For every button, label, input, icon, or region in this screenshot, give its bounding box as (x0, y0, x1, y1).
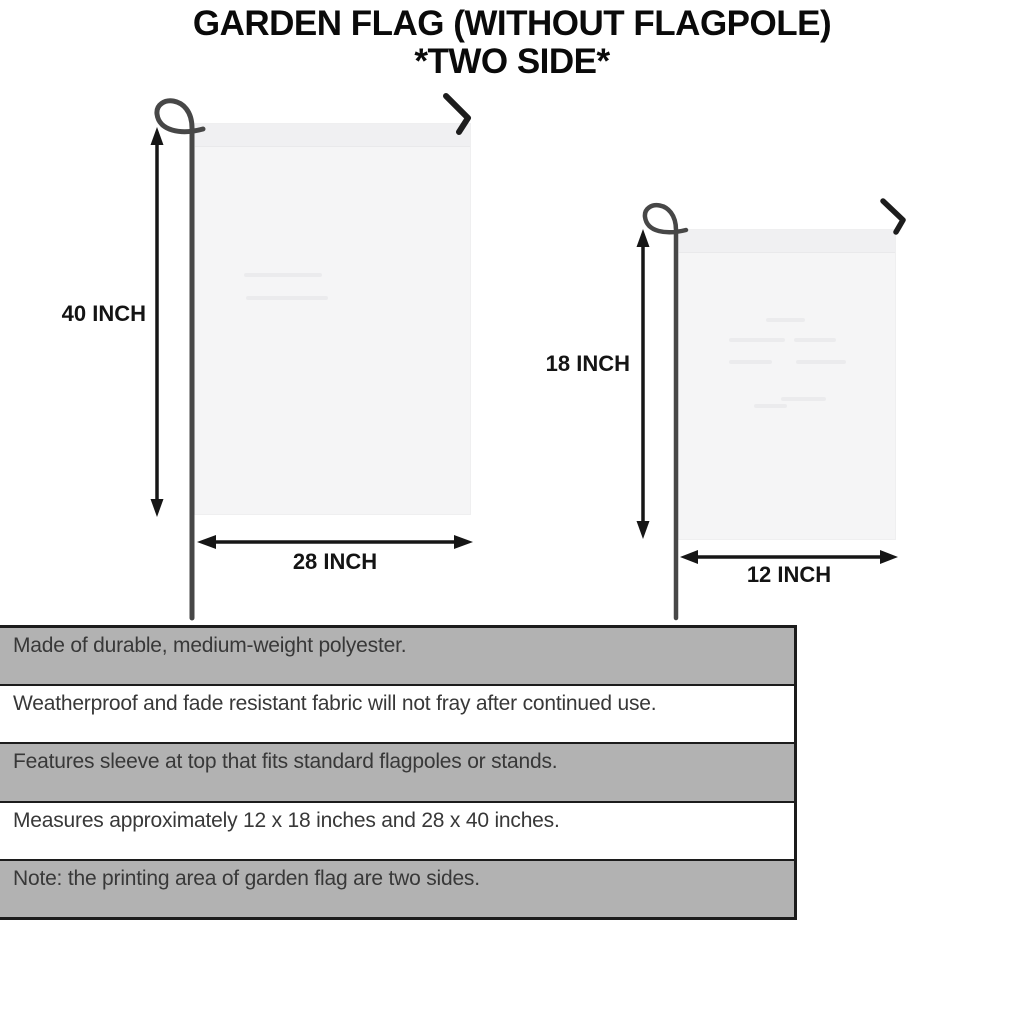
small-flag-preview (678, 229, 896, 540)
small-flag-height-label: 18 INCH (512, 351, 630, 377)
spec-table: Made of durable, medium-weight polyester… (0, 625, 797, 920)
ghost-print-artifact (781, 397, 826, 401)
small-flag-hook-icon (878, 197, 910, 239)
large-flag-width-label: 28 INCH (196, 549, 474, 575)
ghost-print-artifact (244, 273, 322, 277)
small-flag-sleeve (679, 230, 895, 253)
spec-row-note: Note: the printing area of garden flag a… (0, 859, 794, 917)
spec-row-sleeve: Features sleeve at top that fits standar… (0, 742, 794, 800)
spec-row-material: Made of durable, medium-weight polyester… (0, 628, 794, 684)
small-flag-width-label: 12 INCH (679, 562, 899, 588)
page-title: GARDEN FLAG (WITHOUT FLAGPOLE) *TWO SIDE… (0, 5, 1024, 81)
ghost-print-artifact (754, 404, 787, 408)
ghost-print-artifact (729, 338, 785, 342)
ghost-print-artifact (796, 360, 846, 364)
spec-row-measurements: Measures approximately 12 x 18 inches an… (0, 801, 794, 859)
large-flag-sleeve (195, 124, 470, 147)
small-flag-height-arrow-icon (633, 228, 653, 540)
spec-row-weatherproof: Weatherproof and fade resistant fabric w… (0, 684, 794, 742)
ghost-print-artifact (766, 318, 805, 322)
large-flag-height-label: 40 INCH (28, 301, 146, 327)
ghost-print-artifact (729, 360, 772, 364)
large-flag-preview (194, 123, 471, 515)
garden-flag-size-infographic: GARDEN FLAG (WITHOUT FLAGPOLE) *TWO SIDE… (0, 0, 1024, 1024)
large-flag-height-arrow-icon (147, 126, 167, 518)
ghost-print-artifact (794, 338, 836, 342)
ghost-print-artifact (246, 296, 328, 300)
title-line-1: GARDEN FLAG (WITHOUT FLAGPOLE) (0, 5, 1024, 43)
large-flag-hook-icon (440, 92, 476, 138)
title-line-2: *TWO SIDE* (0, 43, 1024, 81)
